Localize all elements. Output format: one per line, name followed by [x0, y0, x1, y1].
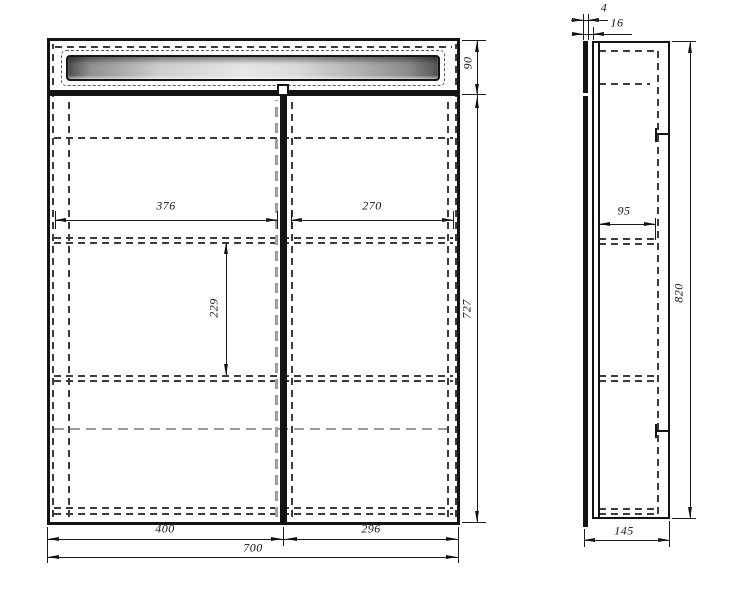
dim-label-total-height: 820 [672, 283, 687, 303]
dim-label-door-thickness: 4 [601, 1, 608, 16]
dim-label-total-depth: 145 [614, 524, 634, 539]
side-carcass-outline [592, 41, 670, 519]
side-door-profile [583, 41, 588, 527]
extension-line [655, 218, 656, 240]
arrowhead [688, 507, 692, 518]
extension-line [672, 41, 696, 42]
shelf-notch [655, 128, 657, 142]
dimension-line [690, 41, 691, 519]
arrowhead [593, 32, 604, 36]
arrowhead [658, 538, 669, 542]
technical-drawing-canvas: 376 270 229 90 727 400 [0, 0, 734, 600]
arrowhead [572, 18, 583, 22]
dim-label-front-offset: 16 [611, 16, 624, 31]
dimension-line [584, 540, 669, 541]
extension-line [669, 521, 670, 547]
shelf-notch [655, 430, 669, 432]
door-split-gap [583, 93, 588, 96]
arrowhead [572, 32, 583, 36]
shelf-notch [655, 133, 669, 135]
arrowhead [688, 42, 692, 53]
side-view: 4 16 95 820 145 [0, 0, 734, 600]
extension-line [672, 518, 696, 519]
arrowhead [588, 18, 599, 22]
extension-line [583, 14, 584, 40]
arrowhead [644, 222, 655, 226]
arrowhead [599, 222, 610, 226]
side-front-inner-edge [598, 43, 600, 517]
arrowhead [584, 538, 595, 542]
dim-label-shelf-depth: 95 [618, 204, 631, 219]
